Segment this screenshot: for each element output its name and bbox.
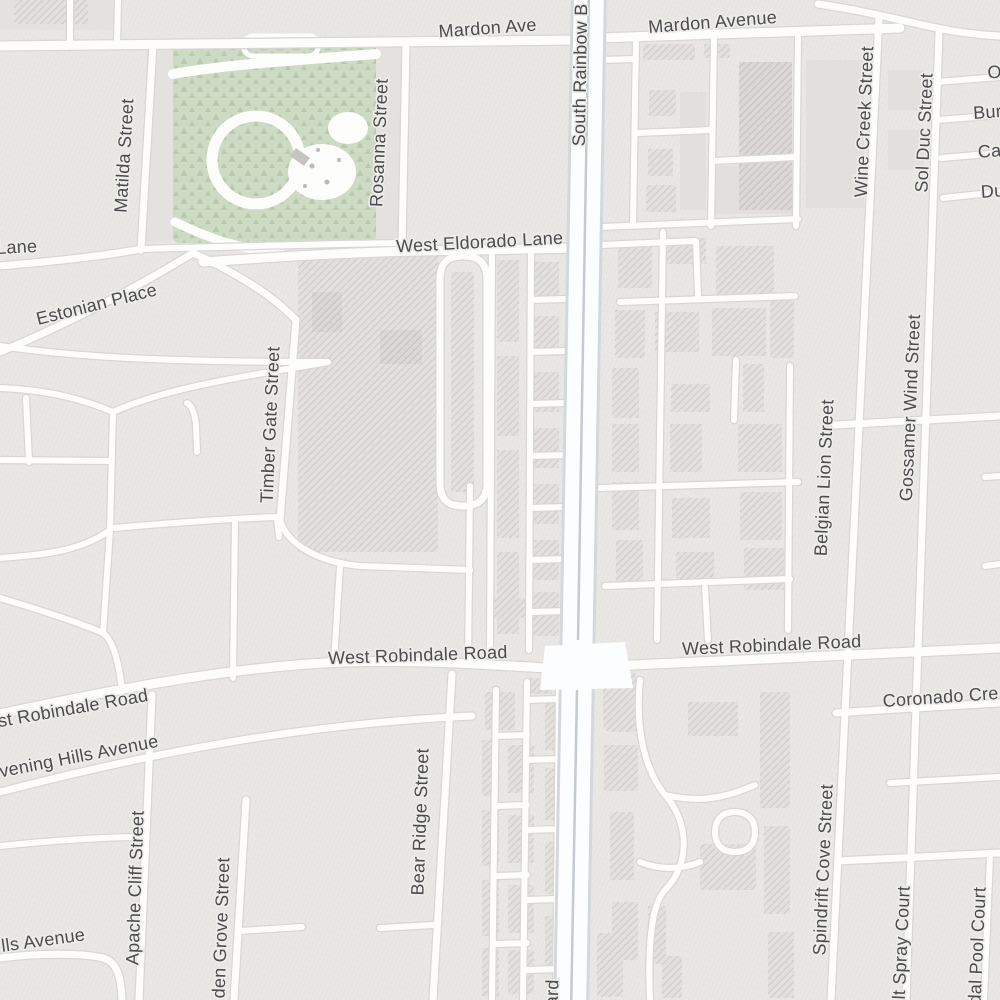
label-right-edge-o: O xyxy=(987,62,1000,83)
label-belgian-lion-street: Belgian Lion Street xyxy=(811,399,838,557)
label-lane-partial: Lane xyxy=(0,236,38,258)
map-svg: Lane Mardon Ave Mardon Avenue South Rain… xyxy=(0,0,1000,1000)
label-estonian-place: Estonian Place xyxy=(34,280,159,329)
label-matilda-street: Matilda Street xyxy=(111,98,138,214)
label-west-robindale-left: st Robindale Road xyxy=(0,685,150,731)
map-canvas[interactable]: Lane Mardon Ave Mardon Avenue South Rain… xyxy=(0,0,1000,1000)
label-right-edge-du: Du xyxy=(980,180,1000,202)
park xyxy=(173,36,376,253)
label-bear-ridge-street: Bear Ridge Street xyxy=(407,748,432,896)
label-garden-grove-street: den Grove Street xyxy=(209,857,234,999)
label-south-rainbow-bottom: ard xyxy=(542,979,563,1000)
label-south-rainbow-top: South Rainbow B xyxy=(569,3,591,146)
label-right-edge-bur: Bur xyxy=(973,101,1000,123)
intersection-flare xyxy=(540,642,633,690)
label-right-edge-ca: Ca xyxy=(977,140,1000,162)
